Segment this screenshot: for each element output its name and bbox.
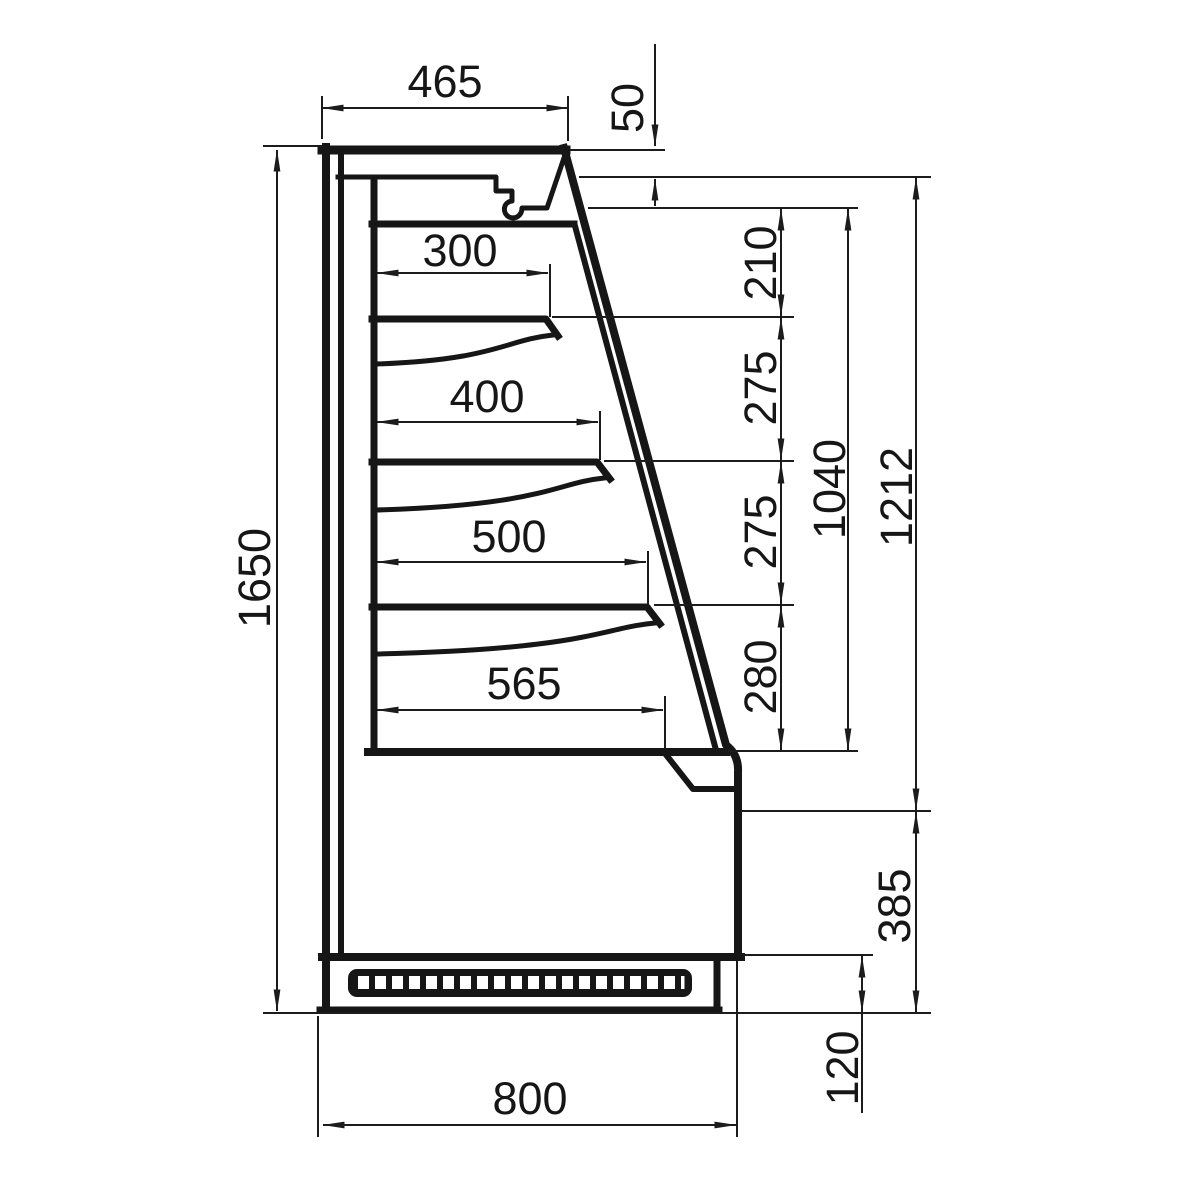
dimension-labels: 465 50 1650 300 400 500 565 210 275 275 … <box>229 56 922 1124</box>
front-step-profile <box>667 756 736 789</box>
ventilation-grille <box>348 969 692 997</box>
dim-shelf-2-depth-label: 400 <box>449 371 524 422</box>
dim-total-height-label: 1650 <box>229 528 280 628</box>
dim-shelf-1-depth-label: 300 <box>422 225 497 276</box>
shelf-3-line <box>372 607 660 624</box>
cabinet-section-drawing: 465 50 1650 300 400 500 565 210 275 275 … <box>0 0 1200 1200</box>
dim-opening-height-label: 1040 <box>804 439 855 539</box>
dim-canopy-height-label: 50 <box>602 83 653 133</box>
front-glass-outer <box>564 148 738 956</box>
shelf-2-break-curve <box>376 478 604 510</box>
dim-plinth-height-label: 120 <box>817 1030 868 1105</box>
cabinet-outline <box>320 147 741 1010</box>
dim-spacing-2-label: 275 <box>735 350 786 425</box>
front-glass-inner <box>575 226 716 750</box>
drawing-canvas: 465 50 1650 300 400 500 565 210 275 275 … <box>0 0 1200 1200</box>
dim-spacing-1-label: 210 <box>735 225 786 300</box>
dim-top-depth-label: 465 <box>407 56 482 107</box>
shelf-1-line <box>372 319 558 336</box>
dim-total-depth-label: 800 <box>492 1073 567 1124</box>
dim-spacing-3-label: 275 <box>735 494 786 569</box>
shelf-1-break-curve <box>376 335 553 364</box>
dim-base-height-label: 385 <box>869 868 920 943</box>
dim-spacing-4-label: 280 <box>735 639 786 714</box>
dim-shelf-3-depth-label: 500 <box>471 511 546 562</box>
shelf-3-break-curve <box>376 623 655 654</box>
shelves <box>372 319 660 654</box>
dim-deck-depth-label: 565 <box>486 658 561 709</box>
dim-front-height-label: 1212 <box>871 447 922 547</box>
shelf-2-line <box>372 462 610 479</box>
